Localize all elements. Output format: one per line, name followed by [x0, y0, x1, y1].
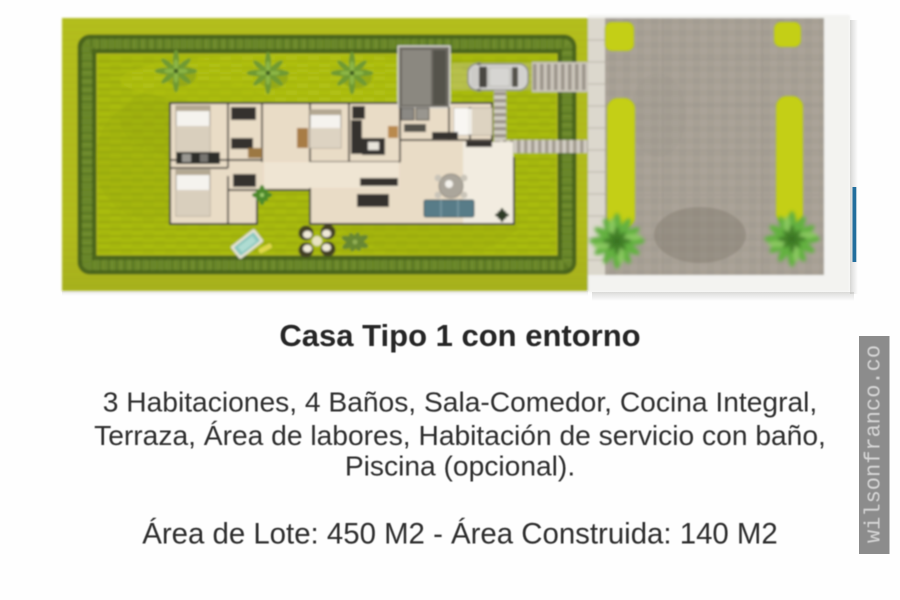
svg-text:Terraza, Área de labores, Habi: Terraza, Área de labores, Habitación de …: [94, 419, 826, 451]
svg-text:3 Habitaciones, 4 Baños, Sala-: 3 Habitaciones, 4 Baños, Sala-Comedor, C…: [103, 386, 818, 418]
svg-text:Área de Lote: 450 M2 - Área Co: Área de Lote: 450 M2 - Área Construida: …: [142, 518, 778, 551]
svg-text:Piscina (opcional).: Piscina (opcional).: [345, 450, 575, 482]
svg-text:Casa Tipo 1 con entorno: Casa Tipo 1 con entorno: [279, 318, 640, 353]
svg-text:wilsonfranco.co: wilsonfranco.co: [862, 345, 887, 543]
